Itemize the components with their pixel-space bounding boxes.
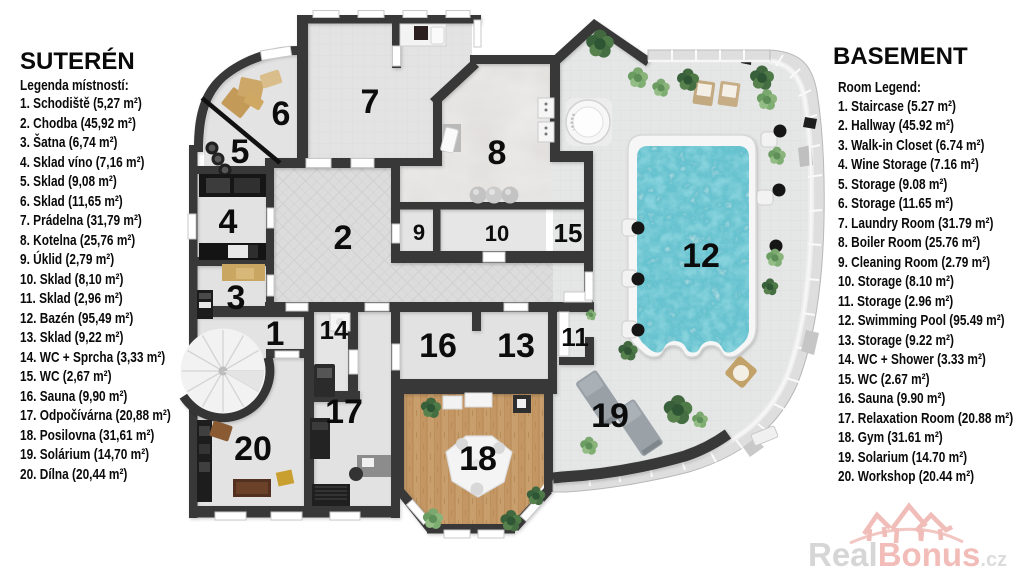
svg-text:13: 13	[497, 327, 535, 365]
svg-text:14: 14	[320, 315, 349, 345]
svg-text:17: 17	[325, 393, 363, 431]
svg-text:12: 12	[682, 237, 720, 275]
svg-text:11: 11	[561, 322, 589, 352]
svg-text:7: 7	[361, 83, 380, 121]
svg-text:6: 6	[272, 95, 291, 133]
svg-text:4: 4	[219, 203, 238, 241]
svg-text:16: 16	[419, 327, 457, 365]
svg-text:9: 9	[413, 220, 425, 245]
svg-text:8: 8	[488, 134, 507, 172]
svg-text:3: 3	[227, 279, 246, 317]
svg-text:19: 19	[591, 397, 629, 435]
svg-text:15: 15	[554, 218, 583, 248]
svg-text:20: 20	[234, 430, 272, 468]
svg-text:RealBonus.cz: RealBonus.cz	[808, 536, 1007, 573]
svg-text:10: 10	[485, 221, 509, 246]
svg-text:18: 18	[459, 440, 497, 478]
svg-text:2: 2	[334, 219, 353, 257]
svg-text:5: 5	[231, 133, 250, 171]
svg-text:1: 1	[266, 315, 285, 353]
